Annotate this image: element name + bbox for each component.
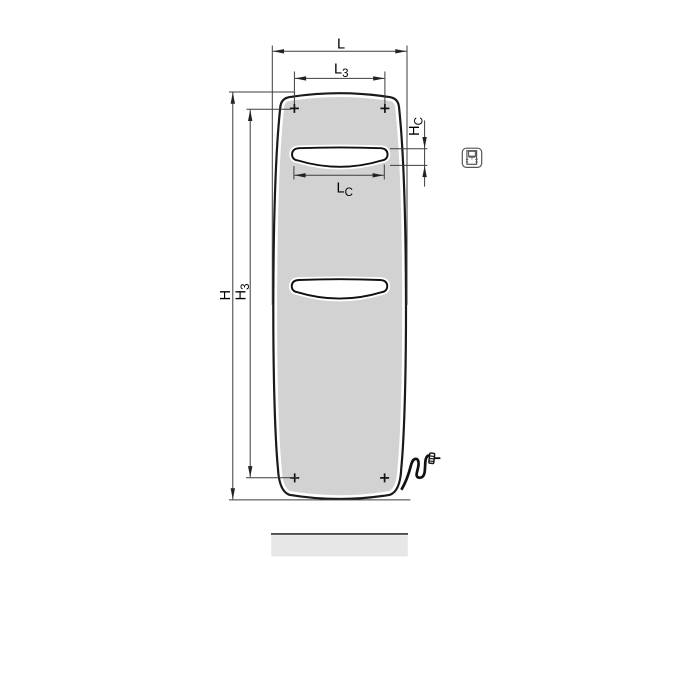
svg-text:H: H [218,290,234,300]
svg-text:L: L [337,37,345,53]
